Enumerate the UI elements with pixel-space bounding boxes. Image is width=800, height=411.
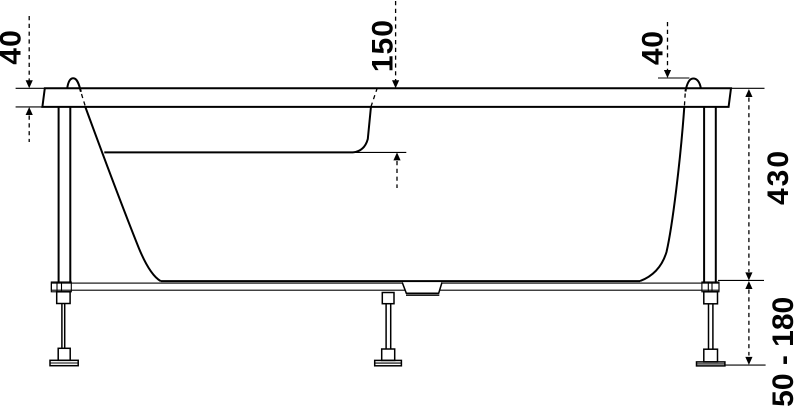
svg-text:50 - 180: 50 - 180 — [767, 297, 800, 407]
svg-text:40: 40 — [0, 29, 28, 65]
svg-text:150: 150 — [367, 19, 400, 72]
svg-text:430: 430 — [762, 149, 795, 205]
svg-text:40: 40 — [636, 30, 669, 65]
